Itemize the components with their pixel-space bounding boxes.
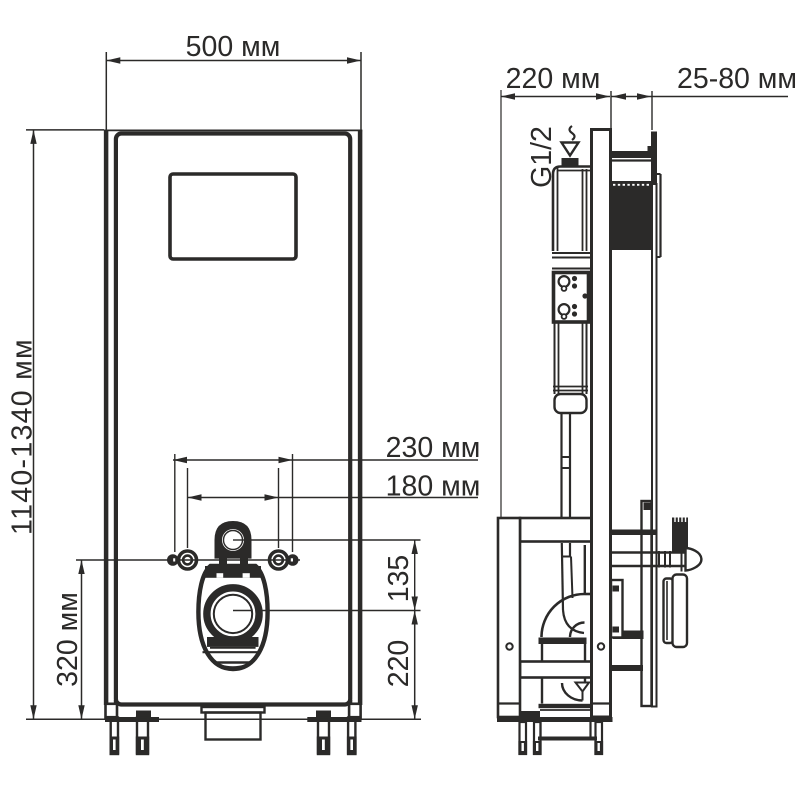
svg-text:180 мм: 180 мм	[386, 471, 481, 503]
svg-text:230 мм: 230 мм	[386, 432, 481, 464]
svg-text:500 мм: 500 мм	[186, 31, 281, 63]
svg-text:220: 220	[383, 640, 415, 688]
svg-text:320 мм: 320 мм	[52, 592, 84, 687]
svg-text:1140-1340 мм: 1140-1340 мм	[7, 338, 39, 535]
svg-text:25-80 мм: 25-80 мм	[677, 63, 797, 95]
svg-text:220 мм: 220 мм	[506, 63, 601, 95]
svg-text:135: 135	[383, 555, 415, 603]
